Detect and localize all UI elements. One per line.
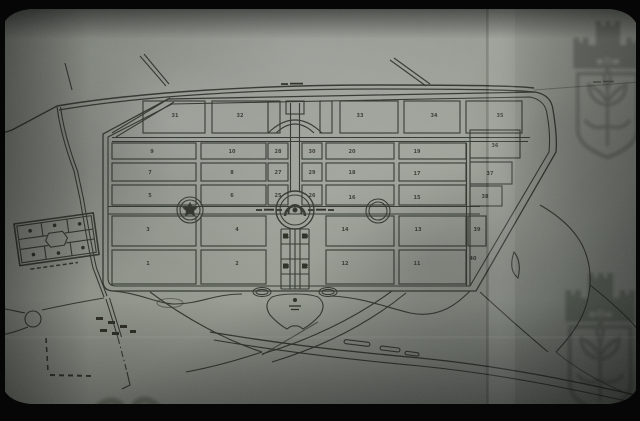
site-plan-photo: 3132333435910283020193678272918173756252… — [0, 0, 640, 421]
photograph-of-site-plan: 3132333435910283020193678272918173756252… — [0, 0, 640, 421]
film-grain — [0, 0, 640, 421]
